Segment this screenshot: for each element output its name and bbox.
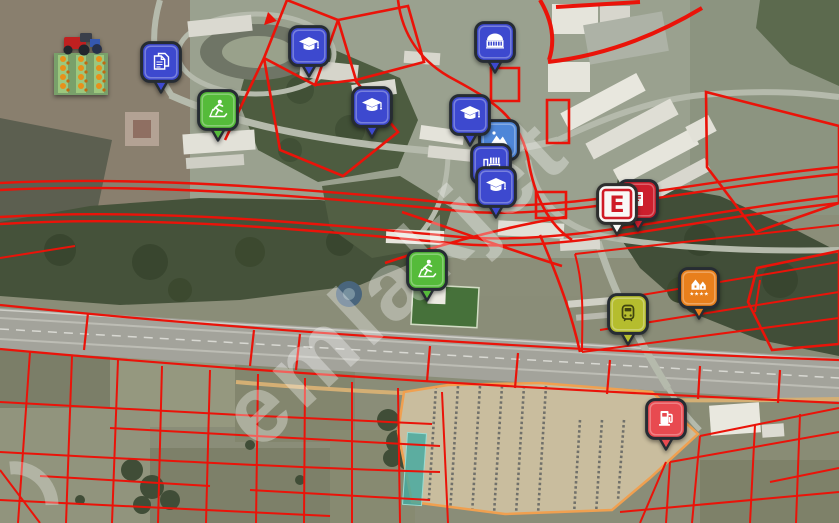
marker-event-hall[interactable] xyxy=(473,20,517,74)
farm-image-icon xyxy=(54,33,108,95)
marker-pharmacy[interactable]: E xyxy=(595,182,639,236)
marker-document-office[interactable] xyxy=(139,40,183,94)
marker-fitness-center-2[interactable] xyxy=(405,248,449,302)
map-canvas[interactable]: emlakjet E★★★★ xyxy=(0,0,839,523)
marker-train-station[interactable] xyxy=(606,292,650,346)
marker-school-4[interactable] xyxy=(474,165,518,219)
marker-school-3[interactable] xyxy=(448,93,492,147)
marker-hotel[interactable]: ★★★★ xyxy=(677,266,721,320)
svg-text:★★★★: ★★★★ xyxy=(689,292,708,298)
marker-fitness-center-1[interactable] xyxy=(196,88,240,142)
marker-fuel-station[interactable] xyxy=(644,397,688,451)
marker-farm-photo[interactable] xyxy=(50,31,112,98)
svg-text:E: E xyxy=(609,193,624,218)
marker-school-1[interactable] xyxy=(287,24,331,78)
marker-school-2[interactable] xyxy=(350,85,394,139)
